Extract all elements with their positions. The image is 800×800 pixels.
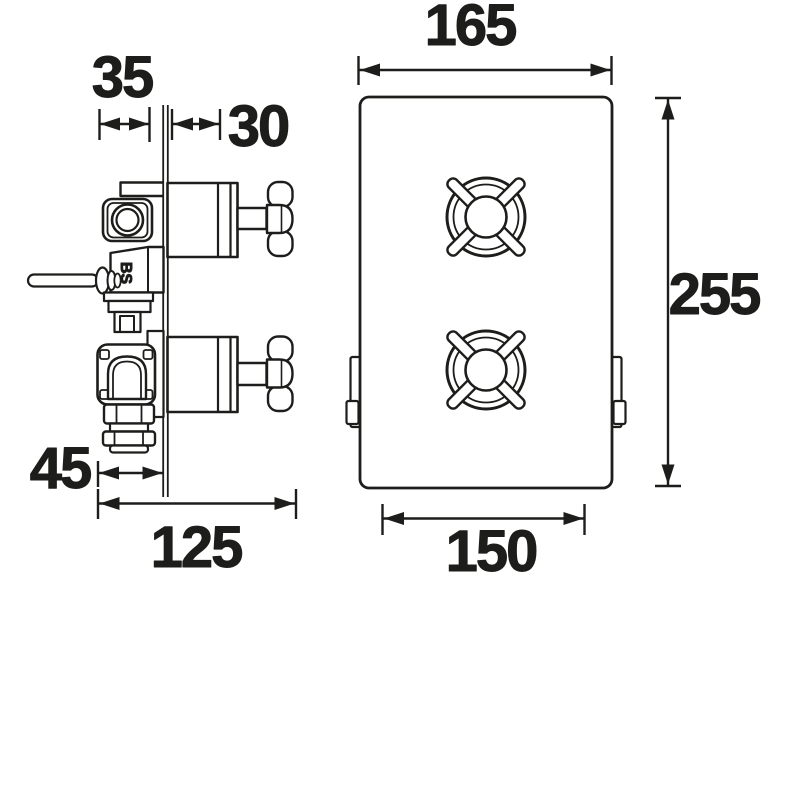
side-view: BS — [28, 45, 296, 580]
middle-bracket — [104, 293, 153, 333]
wall-plate-edge — [163, 105, 168, 497]
upper-mount-bracket — [121, 183, 164, 197]
dimension-35: 35 — [92, 45, 153, 142]
temperature-lever — [28, 268, 121, 294]
compression-nut-stack — [103, 405, 155, 453]
dim-165-label: 165 — [425, 0, 517, 58]
lower-cartridge-body — [168, 337, 238, 412]
dim-35-label: 35 — [92, 45, 153, 110]
technical-drawing-page: BS — [0, 0, 800, 800]
dimension-255: 255 — [655, 98, 760, 486]
face-plate — [360, 97, 612, 488]
dimension-165: 165 — [359, 0, 612, 85]
dimension-125: 125 — [98, 489, 296, 580]
dimension-150: 150 — [383, 504, 585, 584]
upper-handle-stem — [238, 208, 267, 229]
valve-technical-drawing: BS — [0, 0, 800, 800]
right-fixing-tab — [612, 357, 626, 427]
front-view: 165 255 150 — [347, 0, 761, 584]
dim-125-label: 125 — [151, 515, 243, 580]
dimension-30: 30 — [172, 94, 288, 159]
lower-side-handle — [267, 337, 293, 412]
dim-150-label: 150 — [446, 519, 537, 584]
upper-cartridge-body — [168, 183, 238, 257]
inlet-flange — [103, 199, 152, 241]
dim-255-label: 255 — [669, 262, 761, 327]
left-fixing-tab — [347, 357, 361, 427]
lower-handle-stem — [238, 363, 267, 385]
dim-30-label: 30 — [228, 94, 289, 159]
dim-45-label: 45 — [30, 436, 91, 501]
upper-side-handle — [267, 182, 293, 256]
